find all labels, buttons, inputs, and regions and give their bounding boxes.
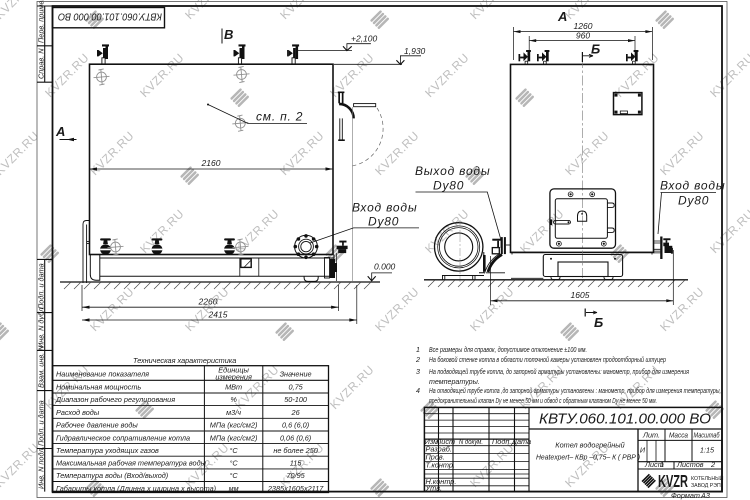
svg-text:Все размеры для справок, допус: Все размеры для справок, допустимое откл… <box>429 346 587 354</box>
svg-text:Выход воды: Выход воды <box>415 164 490 178</box>
svg-text:На боковой стенке котла в обла: На боковой стенке котла в области топочн… <box>429 356 666 364</box>
svg-text:А: А <box>55 124 65 139</box>
svg-text:КОТЕЛЬНЫЙ: КОТЕЛЬНЫЙ <box>691 474 724 482</box>
svg-text:Листов: Листов <box>676 460 704 469</box>
svg-text:°С: °С <box>229 471 238 480</box>
svg-text:Перв. примен.: Перв. примен. <box>37 0 46 43</box>
svg-text:2160: 2160 <box>201 158 221 168</box>
svg-text:Масса: Масса <box>669 431 688 440</box>
svg-text:Расход воды: Расход воды <box>56 408 100 417</box>
svg-text:4: 4 <box>416 387 420 395</box>
svg-text:ЗАВОД РЭП: ЗАВОД РЭП <box>691 483 721 489</box>
svg-text:1260: 1260 <box>574 21 593 31</box>
svg-text:0,6 (6,0): 0,6 (6,0) <box>282 421 309 430</box>
svg-text:Т.контр.: Т.контр. <box>426 461 455 470</box>
svg-text:На подводящей трубе котла, д: На подводящей трубе котла, до запорной а… <box>429 368 689 376</box>
svg-text:0.000: 0.000 <box>374 262 396 272</box>
svg-text:КВТУ.060.101.00.000 ВО: КВТУ.060.101.00.000 ВО <box>539 412 711 428</box>
svg-text:Подп. и дата: Подп. и дата <box>37 400 46 446</box>
svg-text:Heatexpert– КВр –0,75– К ( РВР: Heatexpert– КВр –0,75– К ( РВР ) <box>536 453 640 462</box>
svg-text:КВТУ.060.101.00.000 ВО: КВТУ.060.101.00.000 ВО <box>58 11 162 23</box>
svg-text:2260: 2260 <box>198 297 218 307</box>
svg-text:1: 1 <box>416 346 420 354</box>
svg-text:Справ. N: Справ. N <box>37 48 46 79</box>
svg-text:МПа (кгс/см2): МПа (кгс/см2) <box>210 433 258 442</box>
svg-text:Вход воды: Вход воды <box>660 179 725 193</box>
svg-text:1: 1 <box>660 460 664 469</box>
svg-text:+2,100: +2,100 <box>351 34 378 44</box>
svg-text:Номинальная мощность: Номинальная мощность <box>56 383 141 392</box>
svg-text:Вход воды: Вход воды <box>352 201 417 215</box>
svg-text:измерения: измерения <box>215 373 252 382</box>
svg-text:2: 2 <box>415 356 420 364</box>
svg-text:Максимальная рабочая температу: Максимальная рабочая температура воды <box>56 459 207 468</box>
svg-text:Значение: Значение <box>280 370 312 379</box>
svg-text:3: 3 <box>416 368 420 376</box>
svg-text:Dy80: Dy80 <box>368 215 399 229</box>
svg-text:Подп. и дата: Подп. и дата <box>37 263 46 309</box>
svg-text:Лит.: Лит. <box>642 431 660 440</box>
svg-text:Взам. инв. N: Взам. инв. N <box>37 345 46 388</box>
svg-text:температуры.: температуры. <box>429 378 480 386</box>
svg-text:На отводящей трубе котла ,до з: На отводящей трубе котла ,до запорной ар… <box>429 387 721 395</box>
svg-text:50-100: 50-100 <box>284 395 307 404</box>
svg-text:Котел водогрейный: Котел водогрейный <box>555 441 624 450</box>
svg-text:Утв.: Утв. <box>425 484 443 493</box>
svg-text:1,930: 1,930 <box>404 46 426 56</box>
svg-text:МПа (кгс/см2): МПа (кгс/см2) <box>210 421 258 430</box>
svg-text:°С: °С <box>229 446 238 455</box>
svg-text:115: 115 <box>290 459 303 468</box>
svg-text:И: И <box>640 446 646 455</box>
svg-text:1:15: 1:15 <box>700 446 715 455</box>
svg-text:м3/ч: м3/ч <box>226 408 241 417</box>
svg-text:Дата: Дата <box>511 437 531 446</box>
svg-text:А3: А3 <box>700 491 710 500</box>
svg-text:%: % <box>230 395 237 404</box>
svg-text:Подп.: Подп. <box>492 437 511 446</box>
svg-text:Формат: Формат <box>671 491 700 500</box>
svg-text:Наименование показателя: Наименование показателя <box>56 370 149 379</box>
svg-text:Температура уходящих газов: Температура уходящих газов <box>56 446 159 455</box>
svg-text:Температура воды (Вход/выход): Температура воды (Вход/выход) <box>56 471 168 480</box>
svg-text:Гидравлическое сопративление к: Гидравлическое сопративление котла <box>56 433 190 442</box>
svg-text:мм: мм <box>229 484 239 493</box>
svg-text:960: 960 <box>576 31 590 41</box>
svg-text:см. п. 2: см. п. 2 <box>256 110 303 124</box>
svg-text:2385х1605х2117: 2385х1605х2117 <box>267 484 324 493</box>
svg-text:26: 26 <box>291 408 301 417</box>
svg-text:МВт: МВт <box>225 383 242 392</box>
svg-text:°С: °С <box>229 459 238 468</box>
svg-text:0,75: 0,75 <box>288 383 303 392</box>
svg-text:предохранительный клапан Dy н: предохранительный клапан Dy не менее 50 … <box>429 397 657 405</box>
svg-text:Техническая характеристика: Техническая характеристика <box>133 356 236 365</box>
svg-text:не более 250: не более 250 <box>273 446 318 455</box>
svg-text:Габариты котла (Длинна х ширин: Габариты котла (Длинна х ширина х высота… <box>56 484 216 493</box>
svg-text:Dy80: Dy80 <box>678 194 709 208</box>
svg-text:Масштаб: Масштаб <box>694 431 721 440</box>
svg-text:А: А <box>557 9 567 24</box>
svg-text:Диапазон рабочего регулировани: Диапазон рабочего регулирования <box>55 395 175 404</box>
svg-text:Инв. N подл.: Инв. N подл. <box>37 446 46 489</box>
svg-text:1605: 1605 <box>571 290 590 300</box>
svg-text:Рабочее давление воды: Рабочее давление воды <box>56 421 138 430</box>
svg-text:2: 2 <box>710 460 715 469</box>
svg-text:KVZR: KVZR <box>658 471 688 491</box>
svg-text:N докум.: N докум. <box>459 437 483 446</box>
svg-text:70/95: 70/95 <box>286 471 305 480</box>
svg-text:Инв. N дубл.: Инв. N дубл. <box>37 306 46 348</box>
svg-text:Б: Б <box>594 315 603 330</box>
svg-text:Б: Б <box>591 42 600 57</box>
svg-text:В: В <box>224 27 233 42</box>
svg-text:2415: 2415 <box>208 309 228 319</box>
svg-text:Dy80: Dy80 <box>433 179 464 193</box>
svg-text:0,06 (0,6): 0,06 (0,6) <box>280 433 311 442</box>
